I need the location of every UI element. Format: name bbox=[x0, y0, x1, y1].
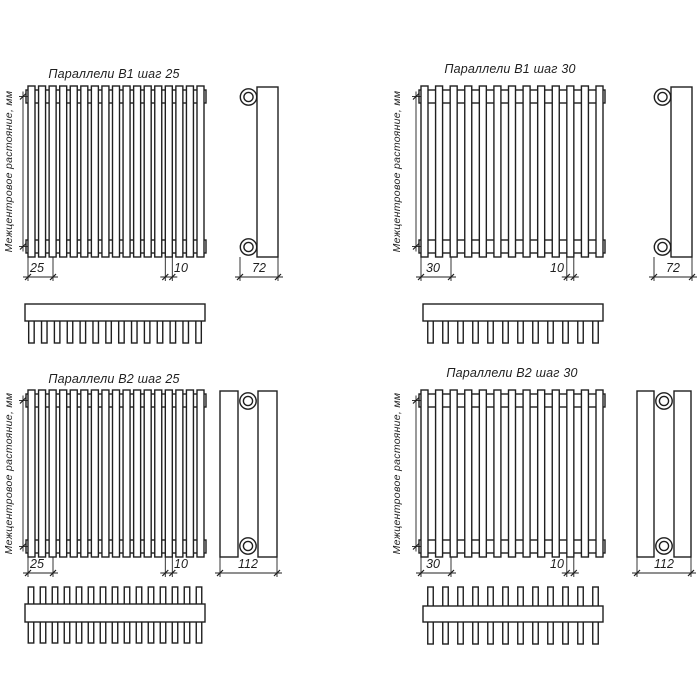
tube-section-bottom bbox=[593, 620, 599, 644]
radiator-tube bbox=[113, 86, 120, 257]
tube-section-bottom bbox=[593, 319, 599, 343]
radiator-tube bbox=[102, 86, 109, 257]
center-distance-label: Межцентровое растояние, мм bbox=[391, 91, 403, 253]
radiator-tube bbox=[436, 86, 443, 257]
radiator-tube bbox=[509, 86, 516, 257]
connector-inner-circle bbox=[243, 541, 252, 550]
radiator-tube bbox=[450, 390, 457, 557]
tube-width-dimension-value: 10 bbox=[550, 261, 564, 275]
radiator-tube bbox=[155, 86, 162, 257]
radiator-tube bbox=[60, 390, 67, 557]
connector-inner-circle bbox=[243, 396, 252, 405]
connector-inner-circle bbox=[659, 396, 668, 405]
radiator-tube bbox=[479, 390, 486, 557]
tube-section-top bbox=[64, 587, 70, 606]
radiator-tube bbox=[134, 390, 141, 557]
tube-section-bottom bbox=[67, 319, 73, 343]
connector-inner-circle bbox=[244, 242, 253, 251]
tube-width-dimension-value: 10 bbox=[550, 557, 564, 571]
tube-section-top bbox=[172, 587, 178, 606]
radiator-tube bbox=[113, 390, 120, 557]
radiator-tube bbox=[155, 390, 162, 557]
tube-section-bottom bbox=[428, 620, 434, 644]
tube-section-bottom bbox=[503, 319, 509, 343]
side-column bbox=[671, 87, 692, 257]
center-distance-label: Межцентровое растояние, мм bbox=[3, 393, 15, 555]
tube-section-bottom bbox=[112, 620, 118, 643]
tube-section-top bbox=[563, 587, 569, 608]
depth-dimension-value: 112 bbox=[238, 557, 258, 571]
radiator-tube bbox=[39, 390, 46, 557]
radiator-tube bbox=[567, 390, 574, 557]
tube-section-bottom bbox=[473, 319, 479, 343]
tube-section-bottom bbox=[548, 319, 554, 343]
tube-section-bottom bbox=[136, 620, 142, 643]
tube-section-top bbox=[136, 587, 142, 606]
pitch-dimension-value: 30 bbox=[426, 261, 440, 275]
radiator-tube bbox=[102, 390, 109, 557]
tube-section-bottom bbox=[488, 319, 494, 343]
radiator-tube bbox=[552, 390, 559, 557]
tube-section-top bbox=[40, 587, 46, 606]
tube-section-bottom bbox=[119, 319, 125, 343]
radiator-tube bbox=[70, 86, 77, 257]
pitch-dimension-value: 25 bbox=[29, 557, 44, 571]
radiator-tube bbox=[144, 390, 151, 557]
radiator-tube bbox=[49, 86, 56, 257]
connector-inner-circle bbox=[659, 541, 668, 550]
tube-section-bottom bbox=[563, 319, 569, 343]
tube-section-top bbox=[160, 587, 166, 606]
tube-section-bottom bbox=[29, 319, 35, 343]
tube-section-bottom bbox=[578, 620, 584, 644]
tube-section-top bbox=[124, 587, 130, 606]
radiator-tube bbox=[49, 390, 56, 557]
collector-bar bbox=[423, 304, 603, 321]
tube-section-bottom bbox=[100, 620, 106, 643]
radiator-tube bbox=[538, 86, 545, 257]
tube-section-bottom bbox=[184, 620, 190, 643]
tube-section-bottom bbox=[42, 319, 48, 343]
drawing-parallels-b1-step-25: Параллели В1 шаг 25Межцентровое растояни… bbox=[3, 67, 283, 343]
tube-section-bottom bbox=[132, 319, 138, 343]
tube-section-bottom bbox=[160, 620, 166, 643]
side-column bbox=[637, 391, 654, 557]
tube-section-bottom bbox=[76, 620, 82, 643]
depth-dimension-value: 72 bbox=[252, 261, 266, 275]
tube-section-bottom bbox=[80, 319, 86, 343]
radiator-tube bbox=[581, 86, 588, 257]
tube-section-bottom bbox=[64, 620, 70, 643]
tube-section-bottom bbox=[144, 319, 150, 343]
tube-section-top bbox=[184, 587, 190, 606]
tube-section-bottom bbox=[157, 319, 163, 343]
connector-inner-circle bbox=[658, 92, 667, 101]
tube-section-bottom bbox=[196, 620, 202, 643]
radiator-tube bbox=[81, 86, 88, 257]
tube-section-bottom bbox=[458, 319, 464, 343]
tube-width-dimension-value: 10 bbox=[174, 261, 188, 275]
radiator-tube bbox=[165, 390, 172, 557]
radiator-tube bbox=[596, 390, 603, 557]
radiator-tube bbox=[450, 86, 457, 257]
tube-section-bottom bbox=[578, 319, 584, 343]
tube-section-top bbox=[473, 587, 479, 608]
tube-section-bottom bbox=[88, 620, 94, 643]
drawing-parallels-b2-step-30: Параллели В2 шаг 30Межцентровое растояни… bbox=[391, 366, 696, 644]
tube-section-bottom bbox=[428, 319, 434, 343]
tube-section-top bbox=[578, 587, 584, 608]
tube-section-top bbox=[100, 587, 106, 606]
tube-section-bottom bbox=[518, 319, 524, 343]
radiator-tube bbox=[70, 390, 77, 557]
radiator-tube bbox=[165, 86, 172, 257]
tube-section-bottom bbox=[93, 319, 99, 343]
tube-section-top bbox=[443, 587, 449, 608]
side-column bbox=[258, 391, 277, 557]
tube-section-top bbox=[196, 587, 202, 606]
tube-section-bottom bbox=[28, 620, 34, 643]
tube-section-bottom bbox=[533, 620, 539, 644]
radiator-tube bbox=[523, 390, 530, 557]
tube-section-bottom bbox=[196, 319, 202, 343]
tube-section-top bbox=[52, 587, 58, 606]
radiator-tube bbox=[60, 86, 67, 257]
tube-section-bottom bbox=[148, 620, 154, 643]
pitch-dimension-value: 25 bbox=[29, 261, 44, 275]
tube-section-top bbox=[28, 587, 34, 606]
collector-bar bbox=[423, 606, 603, 622]
tube-section-bottom bbox=[473, 620, 479, 644]
radiator-tube bbox=[91, 86, 98, 257]
radiator-tube bbox=[421, 86, 428, 257]
radiator-tube bbox=[465, 390, 472, 557]
tube-section-top bbox=[148, 587, 154, 606]
drawing-parallels-b2-step-25: Параллели В2 шаг 25Межцентровое растояни… bbox=[3, 372, 282, 643]
tube-section-bottom bbox=[458, 620, 464, 644]
radiator-tube bbox=[28, 86, 35, 257]
radiator-tube bbox=[494, 86, 501, 257]
radiator-tube bbox=[176, 390, 183, 557]
drawing-title: Параллели В1 шаг 25 bbox=[48, 67, 179, 81]
connector-inner-circle bbox=[658, 242, 667, 251]
tube-section-top bbox=[88, 587, 94, 606]
radiator-tube bbox=[91, 390, 98, 557]
tube-section-top bbox=[533, 587, 539, 608]
tube-section-bottom bbox=[443, 620, 449, 644]
radiator-tube bbox=[567, 86, 574, 257]
tube-section-bottom bbox=[40, 620, 46, 643]
radiator-tube bbox=[596, 86, 603, 257]
radiator-tube bbox=[509, 390, 516, 557]
center-distance-label: Межцентровое растояние, мм bbox=[3, 91, 15, 253]
radiator-tube bbox=[436, 390, 443, 557]
radiator-tube bbox=[123, 86, 130, 257]
radiator-tube bbox=[197, 390, 204, 557]
tube-section-bottom bbox=[488, 620, 494, 644]
radiator-drawings-canvas: Параллели В1 шаг 25Межцентровое растояни… bbox=[0, 0, 700, 700]
tube-section-top bbox=[458, 587, 464, 608]
tube-section-bottom bbox=[518, 620, 524, 644]
connector-inner-circle bbox=[244, 92, 253, 101]
tube-section-bottom bbox=[548, 620, 554, 644]
drawing-parallels-b1-step-30: Параллели В1 шаг 30Межцентровое растояни… bbox=[391, 62, 697, 343]
radiator-tube bbox=[81, 390, 88, 557]
tube-section-bottom bbox=[563, 620, 569, 644]
pitch-dimension-value: 30 bbox=[426, 557, 440, 571]
radiator-tube bbox=[421, 390, 428, 557]
tube-section-bottom bbox=[124, 620, 130, 643]
tube-section-top bbox=[548, 587, 554, 608]
tube-section-bottom bbox=[172, 620, 178, 643]
drawing-title: Параллели В2 шаг 30 bbox=[446, 366, 577, 380]
tube-section-bottom bbox=[443, 319, 449, 343]
depth-dimension-value: 112 bbox=[654, 557, 674, 571]
radiator-tube bbox=[28, 390, 35, 557]
drawing-title: Параллели В2 шаг 25 bbox=[48, 372, 179, 386]
collector-bar bbox=[25, 304, 205, 321]
drawing-title: Параллели В1 шаг 30 bbox=[444, 62, 575, 76]
side-column bbox=[674, 391, 691, 557]
tube-section-bottom bbox=[52, 620, 58, 643]
radiator-tube bbox=[538, 390, 545, 557]
radiator-tube bbox=[123, 390, 130, 557]
radiator-tube bbox=[581, 390, 588, 557]
tube-section-top bbox=[428, 587, 434, 608]
drawing-sheet: Параллели В1 шаг 25Межцентровое растояни… bbox=[0, 0, 700, 700]
tube-section-bottom bbox=[106, 319, 112, 343]
radiator-tube bbox=[186, 86, 193, 257]
tube-section-top bbox=[593, 587, 599, 608]
radiator-tube bbox=[186, 390, 193, 557]
tube-section-bottom bbox=[533, 319, 539, 343]
tube-section-bottom bbox=[170, 319, 176, 343]
radiator-tube bbox=[176, 86, 183, 257]
radiator-tube bbox=[39, 86, 46, 257]
tube-section-top bbox=[488, 587, 494, 608]
radiator-tube bbox=[494, 390, 501, 557]
center-distance-label: Межцентровое растояние, мм bbox=[391, 393, 403, 555]
tube-section-bottom bbox=[54, 319, 60, 343]
tube-width-dimension-value: 10 bbox=[174, 557, 188, 571]
radiator-tube bbox=[479, 86, 486, 257]
radiator-tube bbox=[144, 86, 151, 257]
tube-section-bottom bbox=[503, 620, 509, 644]
side-column bbox=[257, 87, 278, 257]
tube-section-top bbox=[503, 587, 509, 608]
tube-section-top bbox=[76, 587, 82, 606]
depth-dimension-value: 72 bbox=[666, 261, 680, 275]
side-column bbox=[220, 391, 238, 557]
radiator-tube bbox=[465, 86, 472, 257]
tube-section-bottom bbox=[183, 319, 189, 343]
tube-section-top bbox=[112, 587, 118, 606]
radiator-tube bbox=[552, 86, 559, 257]
radiator-tube bbox=[197, 86, 204, 257]
collector-bar bbox=[25, 604, 205, 622]
radiator-tube bbox=[134, 86, 141, 257]
tube-section-top bbox=[518, 587, 524, 608]
radiator-tube bbox=[523, 86, 530, 257]
